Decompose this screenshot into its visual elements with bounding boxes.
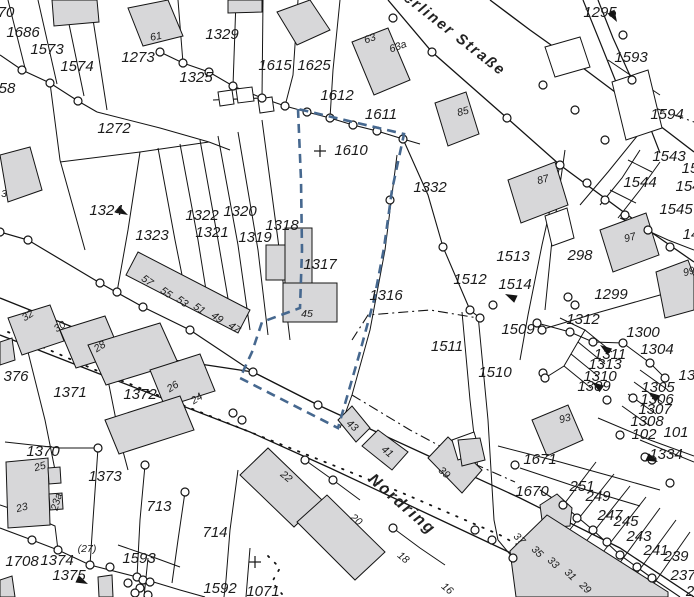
boundary-point — [601, 196, 609, 204]
boundary-point — [249, 368, 257, 376]
parcel-label: 58 — [0, 80, 16, 97]
boundary-point — [603, 396, 611, 404]
boundary-point — [616, 551, 624, 559]
parcel-label: 1592 — [203, 580, 237, 597]
boundary-point — [646, 359, 654, 367]
parcel-label: 1334 — [649, 446, 682, 463]
boundary-point — [124, 579, 132, 587]
parcel-label: 1317 — [303, 256, 337, 273]
building-outline — [236, 87, 254, 103]
parcel-label: 154 — [675, 178, 694, 195]
house-number-label: 45 — [301, 308, 313, 320]
parcel-label: 1071 — [246, 583, 279, 597]
boundary-point — [644, 226, 652, 234]
boundary-point — [141, 461, 149, 469]
parcel-label: 1708 — [5, 553, 39, 570]
boundary-point — [573, 514, 581, 522]
parcel-label: 1300 — [626, 324, 660, 341]
parcel-label: 70 — [0, 4, 15, 21]
boundary-point — [603, 538, 611, 546]
parcel-label: 1304 — [640, 341, 673, 358]
parcel-label: 1325 — [179, 69, 213, 86]
parcel-label: 1594 — [650, 106, 683, 123]
boundary-point — [556, 161, 564, 169]
house-number-label: 61 — [149, 30, 163, 44]
parcel-label: 239 — [662, 548, 689, 565]
boundary-point — [571, 106, 579, 114]
parcel-label: 376 — [3, 368, 29, 385]
boundary-point — [301, 456, 309, 464]
building-footprint — [228, 0, 262, 13]
boundary-point — [314, 401, 322, 409]
parcel-label: 1323 — [135, 227, 169, 244]
parcel-label: 1593 — [614, 49, 648, 66]
boundary-point — [113, 288, 121, 296]
parcel-label: 1625 — [297, 57, 331, 74]
boundary-point — [541, 374, 549, 382]
parcel-label: 1320 — [223, 203, 257, 220]
boundary-point — [666, 243, 674, 251]
boundary-point — [181, 488, 189, 496]
building-footprint — [0, 338, 15, 365]
boundary-point — [488, 536, 496, 544]
boundary-point — [633, 563, 641, 571]
boundary-point — [601, 136, 609, 144]
boundary-point — [619, 31, 627, 39]
boundary-point — [258, 94, 266, 102]
parcel-label: 101 — [663, 424, 688, 441]
parcel-label: 1509 — [501, 321, 535, 338]
parcel-label: 1371 — [53, 384, 86, 401]
parcel-label: 1372 — [123, 386, 157, 403]
parcel-label: 15 — [682, 160, 694, 177]
parcel-label: 1544 — [623, 174, 656, 191]
boundary-point — [489, 301, 497, 309]
boundary-point — [94, 444, 102, 452]
boundary-point — [511, 461, 519, 469]
parcel-label: 237 — [669, 567, 694, 584]
boundary-point — [139, 303, 147, 311]
building-footprint — [48, 467, 61, 484]
boundary-point — [509, 554, 517, 562]
boundary-point — [186, 326, 194, 334]
parcel-label: 1318 — [265, 217, 299, 234]
parcel-label: 1574 — [60, 58, 93, 75]
boundary-point — [583, 179, 591, 187]
parcel-label: 1686 — [6, 24, 40, 41]
parcel-label: 14 — [683, 226, 694, 243]
boundary-point — [466, 306, 474, 314]
parcel-label: 1512 — [453, 271, 487, 288]
parcel-label: 1373 — [88, 468, 122, 485]
parcel-label: 1316 — [369, 287, 403, 304]
parcel-label: 1514 — [498, 276, 531, 293]
parcel-label: 1321 — [195, 224, 228, 241]
building-footprint — [0, 576, 15, 597]
parcel-label: 1511 — [431, 338, 463, 355]
boundary-point — [503, 114, 511, 122]
boundary-point — [238, 416, 246, 424]
boundary-point — [439, 243, 447, 251]
boundary-point — [389, 524, 397, 532]
parcel-label: 1324 — [89, 202, 122, 219]
parcel-label: 1309 — [577, 378, 611, 395]
boundary-point — [666, 479, 674, 487]
parcel-label: 1370 — [26, 443, 60, 460]
parcel-label: 2 — [685, 583, 694, 597]
boundary-point — [146, 578, 154, 586]
boundary-point — [559, 501, 567, 509]
boundary-point — [281, 102, 289, 110]
parcel-label: 298 — [566, 247, 593, 264]
boundary-point — [428, 48, 436, 56]
boundary-point — [131, 589, 139, 597]
boundary-point — [616, 431, 624, 439]
parcel-label: 1593 — [122, 550, 156, 567]
boundary-point — [329, 476, 337, 484]
parcel-label: 713 — [146, 498, 172, 515]
parcel-label: 1611 — [365, 106, 397, 123]
parcel-label: 1510 — [478, 364, 512, 381]
boundary-point — [28, 536, 36, 544]
parcel-label: 714 — [202, 524, 227, 541]
boundary-point — [621, 211, 629, 219]
parcel-label: 1312 — [566, 311, 600, 328]
parcel-label: 249 — [584, 488, 611, 505]
boundary-point — [0, 228, 4, 236]
parcel-label: 102 — [631, 426, 657, 443]
parcel-label: 1332 — [413, 179, 447, 196]
boundary-point — [389, 14, 397, 22]
boundary-point — [571, 301, 579, 309]
parcel-label: 1615 — [258, 57, 292, 74]
house-number-label: (27) — [78, 543, 97, 555]
boundary-point — [539, 81, 547, 89]
parcel-label: 1513 — [496, 248, 530, 265]
parcel-label: 1273 — [121, 49, 155, 66]
boundary-point — [46, 79, 54, 87]
parcel-label: 1573 — [30, 41, 64, 58]
boundary-point — [628, 76, 636, 84]
building-footprint — [266, 245, 285, 280]
parcel-label: 1295 — [583, 4, 617, 21]
boundary-point — [86, 561, 94, 569]
boundary-point — [564, 293, 572, 301]
boundary-point — [566, 328, 574, 336]
parcel-label: 1299 — [594, 286, 628, 303]
parcel-label: 1545 — [659, 201, 693, 218]
parcel-label: 1610 — [334, 142, 368, 159]
parcel-label: 1272 — [97, 120, 131, 137]
boundary-point — [106, 563, 114, 571]
boundary-point — [144, 591, 152, 597]
cadastral-map: 7016861573157458127313291325127213241323… — [0, 0, 694, 597]
boundary-point — [648, 574, 656, 582]
parcel-label: 1329 — [205, 26, 239, 43]
parcel-label: 1322 — [185, 207, 219, 224]
parcel-label: 1670 — [515, 483, 549, 500]
parcel-label: 130 — [678, 367, 694, 384]
boundary-point — [538, 326, 546, 334]
boundary-point — [589, 338, 597, 346]
building-footprint — [98, 575, 113, 597]
cadastral-map-canvas: 7016861573157458127313291325127213241323… — [0, 0, 694, 597]
boundary-point — [156, 48, 164, 56]
boundary-point — [179, 59, 187, 67]
building-outline — [218, 90, 234, 106]
boundary-point — [96, 279, 104, 287]
boundary-point — [476, 314, 484, 322]
parcel-label: 1375 — [52, 567, 86, 584]
boundary-point — [629, 394, 637, 402]
boundary-point — [74, 97, 82, 105]
house-number-label: 3 — [1, 188, 7, 200]
boundary-point — [229, 82, 237, 90]
boundary-point — [229, 409, 237, 417]
boundary-point — [471, 526, 479, 534]
parcel-label: 1612 — [320, 87, 354, 104]
house-number-label: 99 — [682, 264, 694, 279]
boundary-point — [589, 526, 597, 534]
boundary-point — [24, 236, 32, 244]
building-footprint — [52, 0, 99, 26]
boundary-point — [18, 66, 26, 74]
parcel-label: 1671 — [523, 451, 556, 468]
